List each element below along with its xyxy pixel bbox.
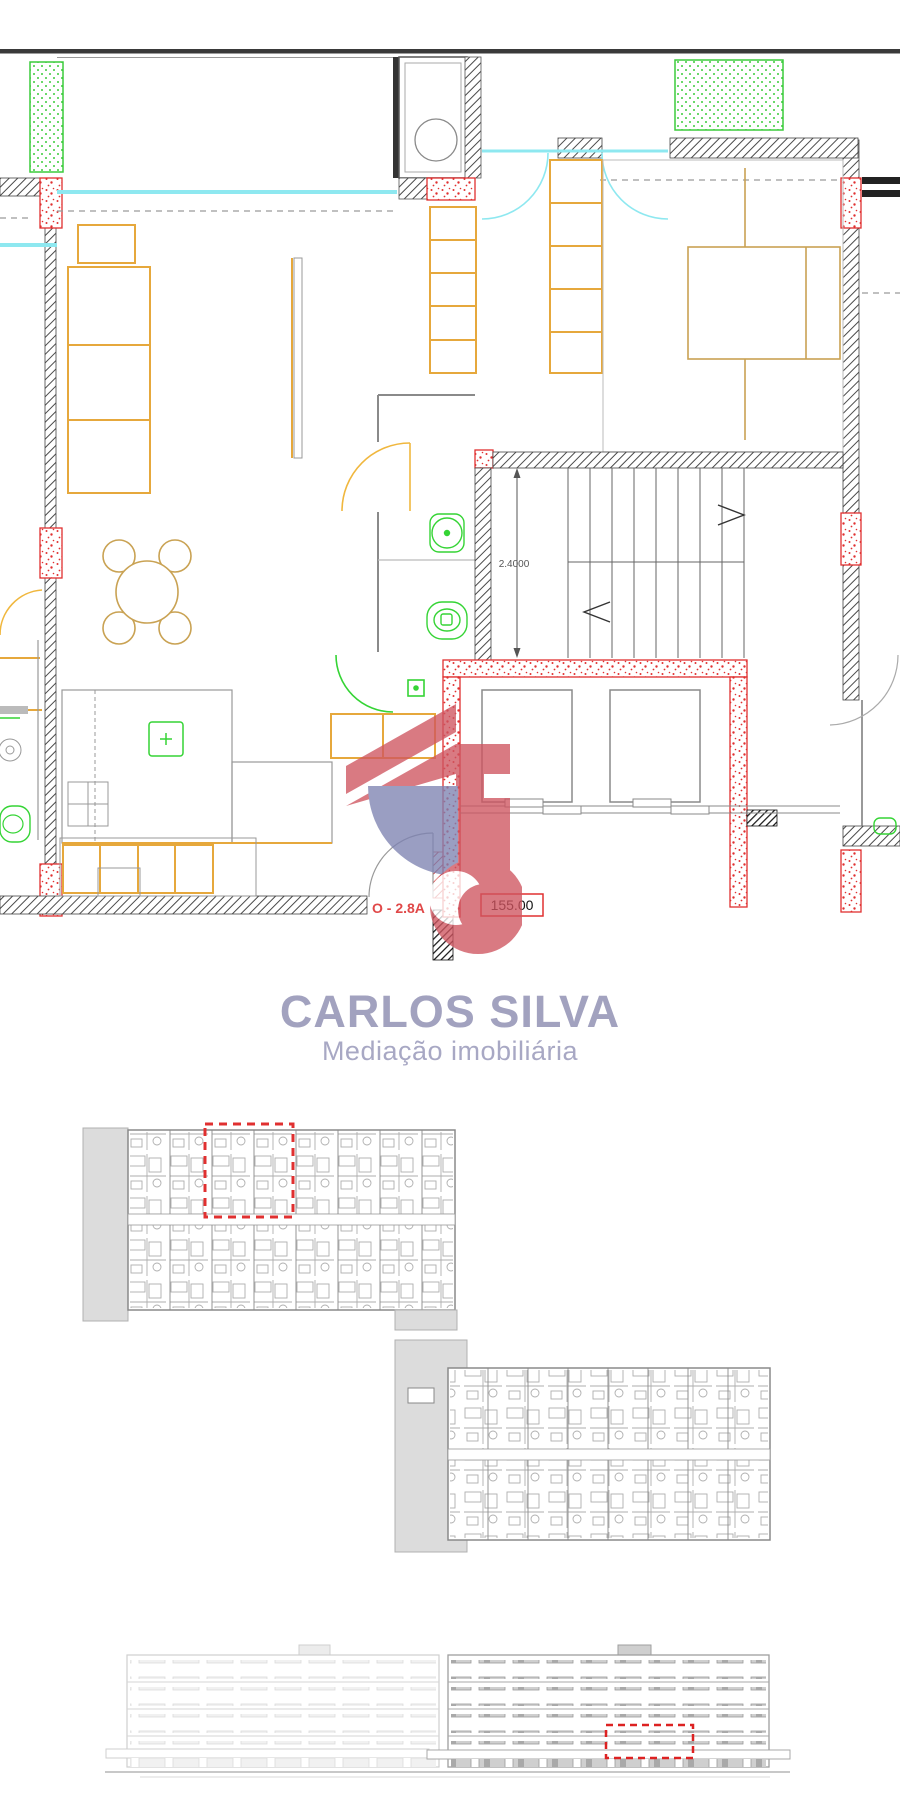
left-exterior-wall [0, 178, 62, 916]
washbasin-icon [430, 514, 464, 552]
kitchen [60, 690, 332, 896]
bathroom-door [342, 443, 410, 511]
terrace-door-arc-right [602, 153, 668, 219]
stair-dimension: 2.4000 [499, 468, 530, 658]
bed [688, 168, 840, 440]
base-cabinets [63, 845, 213, 893]
tv-partition [292, 258, 302, 458]
neighbor-unit-left [0, 590, 42, 842]
bedroom [603, 160, 843, 452]
toilet-icon [427, 602, 467, 639]
sofa [68, 225, 150, 493]
sink-icon [149, 722, 183, 756]
building-overview-plans [0, 1110, 900, 1570]
real-estate-floorplan-image: 2.4000 [0, 0, 900, 1818]
neighbor-door-arc [830, 655, 898, 725]
overview-plan-upper [83, 1124, 457, 1330]
overview-plan-lower [395, 1340, 770, 1552]
elevation-left [106, 1645, 439, 1767]
elevator-car-right [610, 690, 700, 802]
utility-closet [393, 57, 481, 200]
green-panel-right [675, 60, 783, 130]
brand-tagline: Mediação imobiliária [0, 1036, 900, 1067]
stairwell: 2.4000 [475, 450, 843, 660]
kitchen-peninsula [232, 762, 332, 843]
stair-direction-arrow-down [584, 602, 610, 622]
green-panel-left [30, 62, 63, 172]
brand-name: CARLOS SILVA [0, 986, 900, 1038]
brand-logo-watermark-icon [338, 648, 522, 980]
dining-table [103, 540, 191, 644]
stair-dimension-label: 2.4000 [499, 559, 530, 570]
ground-line [105, 1772, 790, 1777]
terrace-door-arc-left [482, 153, 548, 219]
dishwasher [98, 868, 140, 896]
elevation-right [427, 1645, 790, 1767]
stair-treads [568, 468, 744, 658]
building-elevations [0, 1620, 900, 1818]
window-glazing [0, 151, 668, 247]
living-room [68, 225, 302, 644]
bedroom-top-wall [558, 138, 858, 158]
top-exterior-wall [0, 49, 900, 58]
hob-icon [68, 782, 108, 826]
